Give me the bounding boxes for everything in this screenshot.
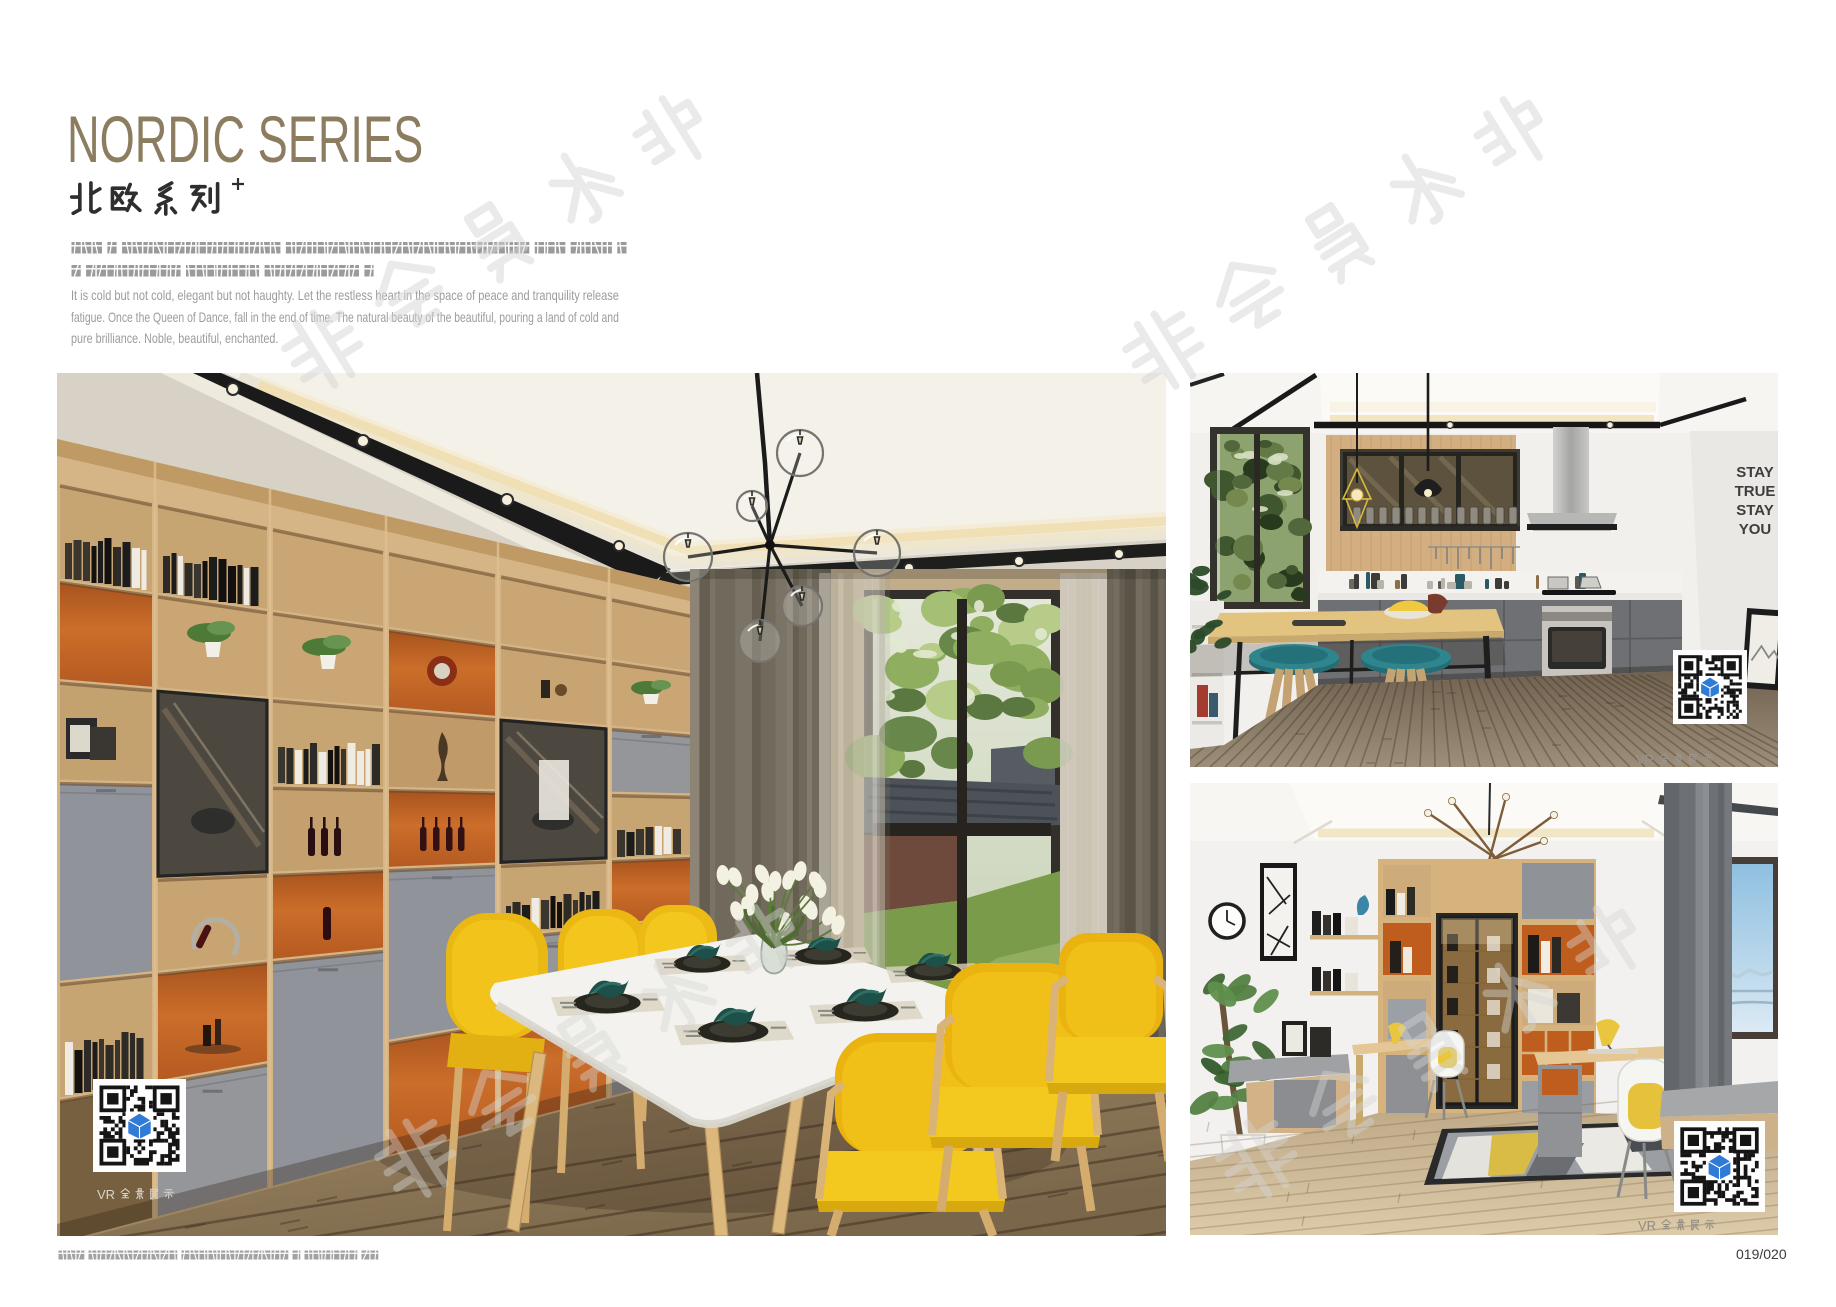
- svg-text:STAY: STAY: [1736, 502, 1774, 519]
- svg-text:VR: VR: [1638, 1218, 1656, 1233]
- svg-text:VR: VR: [1636, 752, 1654, 767]
- svg-text:STAY: STAY: [1736, 464, 1774, 481]
- svg-text:YOU: YOU: [1739, 521, 1772, 538]
- svg-text:TRUE: TRUE: [1735, 483, 1776, 500]
- svg-text:VR: VR: [97, 1187, 115, 1202]
